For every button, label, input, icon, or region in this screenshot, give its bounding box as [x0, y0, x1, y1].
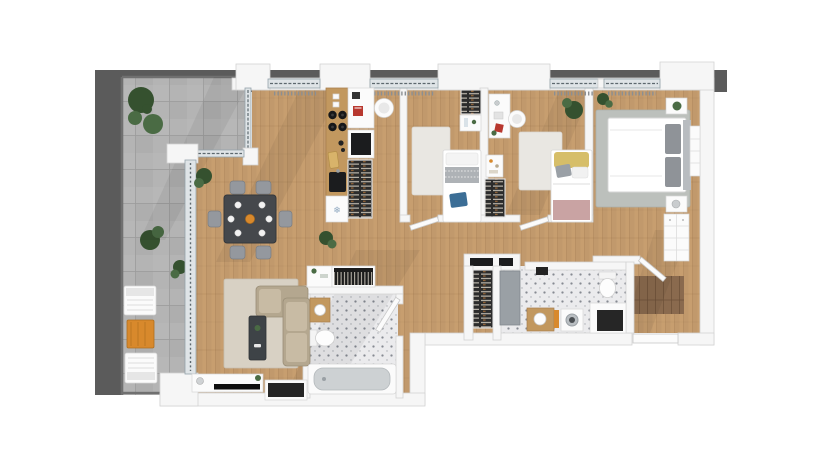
fridge-freezer: ❄: [326, 196, 348, 222]
fruit-bowl: [245, 214, 254, 223]
counter-item: [333, 94, 339, 99]
coffee-table: [249, 316, 266, 360]
bottom-wall-right: [425, 333, 632, 345]
bath1-right-wall: [626, 262, 634, 333]
window-pier: [438, 64, 550, 90]
entry-mat: [630, 276, 684, 314]
plant: [255, 375, 261, 381]
bedroom-wall-segment: [400, 215, 410, 222]
pillow: [665, 157, 681, 187]
window: [268, 79, 320, 88]
single-bed: [443, 150, 481, 222]
window-pier: [320, 64, 370, 90]
toilet: [310, 330, 335, 346]
cutting-board: [328, 151, 339, 168]
ceiling-lamp: [536, 267, 548, 275]
storage-niche: [590, 303, 626, 333]
desk: [489, 94, 510, 138]
lounge-chair: [124, 286, 156, 315]
sideboard: [307, 266, 332, 287]
tv: [214, 384, 260, 390]
partition-wall: [400, 88, 407, 222]
towels: [554, 310, 559, 328]
blue-pillow: [449, 192, 468, 208]
glass-corner-post: [243, 148, 258, 165]
wall-niche: [265, 380, 307, 400]
kettle: [338, 140, 343, 145]
oven: [348, 130, 374, 158]
lounge-chair: [125, 353, 157, 383]
dresser: [664, 214, 689, 261]
pink-throw: [553, 200, 590, 220]
pantry-shelf: [348, 160, 372, 218]
pillow: [665, 124, 681, 154]
toilet: [599, 272, 616, 298]
bottom-wall-right: [678, 333, 714, 345]
transom-window: [470, 258, 493, 266]
front-door: [633, 334, 678, 343]
double-bed: [608, 118, 691, 192]
wardrobe: [485, 179, 505, 217]
vanity-sink: [310, 298, 330, 322]
right-wall: [700, 90, 714, 345]
window: [550, 79, 598, 88]
kettle: [341, 148, 345, 152]
bath2-right-wall: [396, 336, 403, 398]
cabinet: [486, 155, 503, 177]
window: [604, 79, 660, 88]
single-bed: [551, 150, 592, 222]
bathroom-door-open: [500, 271, 520, 325]
floor-plan-stage: ❄: [0, 0, 818, 460]
hall-shelf: [473, 270, 493, 328]
wardrobe: [461, 90, 481, 114]
upper-cabinet: [348, 88, 374, 128]
floor-plan: ❄: [0, 0, 818, 460]
window-pier: [236, 64, 270, 90]
bathtub: [308, 364, 396, 394]
transom-window: [499, 258, 513, 266]
kitchen-sink: [329, 169, 346, 192]
window-wall-left: [185, 160, 196, 374]
window-mullion: [598, 79, 604, 88]
round-chair-cushion: [379, 103, 390, 114]
washing-machine: [561, 309, 583, 331]
round-chair-cushion: [512, 114, 522, 124]
tv-console: [192, 374, 263, 392]
vanity-sink: [527, 308, 554, 331]
nightstand: [666, 196, 687, 212]
side-table: [127, 320, 154, 348]
bath1-niche-wall: [464, 266, 473, 340]
cabinet: [460, 115, 481, 131]
wardrobe: [690, 126, 700, 176]
counter-item: [333, 102, 339, 107]
speaker: [197, 378, 204, 385]
snowflake-icon: ❄: [333, 206, 341, 216]
bookshelf: [332, 266, 375, 287]
nightstand: [666, 98, 687, 114]
window: [370, 79, 438, 88]
